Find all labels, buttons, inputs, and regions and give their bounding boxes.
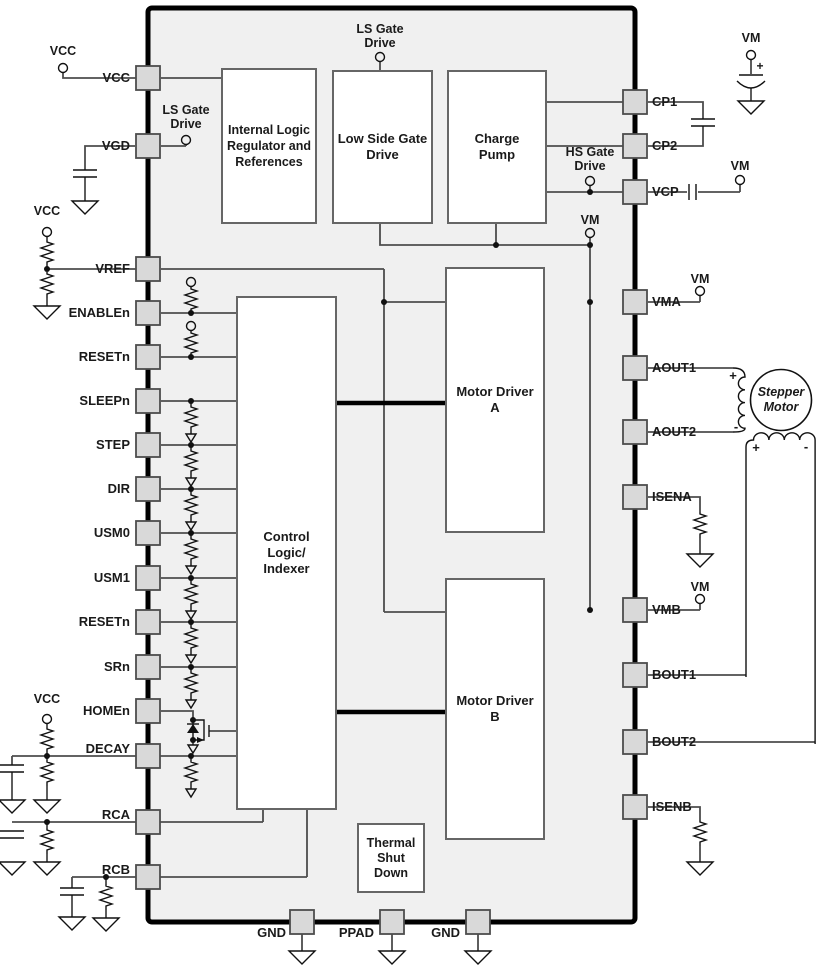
terminal-vm-vcp (736, 176, 745, 185)
pin-vgd (136, 134, 160, 158)
pin-label-vgd: VGD (0, 138, 130, 153)
block-internal-logic-regulator: Internal Logic Regulator and References (221, 68, 317, 224)
winding-b-icon (746, 433, 815, 744)
pin-homen (136, 699, 160, 723)
vm-label-vcp: VM (705, 159, 775, 173)
pin-enablen (136, 301, 160, 325)
stepper-motor-label: Stepper Motor (741, 385, 816, 415)
block-motor-driver-b: Motor Driver B (445, 578, 545, 840)
pin-vmb (623, 598, 647, 622)
capacitor-decay (0, 765, 24, 772)
pin-label-aout1: AOUT1 (652, 360, 736, 375)
pin-label-resetn-2: RESETn (0, 614, 130, 629)
pin-label-vcp: VCP (652, 184, 736, 199)
pin-decay (136, 744, 160, 768)
winding-b-plus: + (749, 440, 763, 455)
pin-step (136, 433, 160, 457)
block-control-logic-indexer: Control Logic/ Indexer (236, 296, 337, 810)
pin-label-gnd-2: GND (376, 925, 460, 940)
pin-label-aout2: AOUT2 (652, 424, 736, 439)
pin-label-rca: RCA (0, 807, 130, 822)
pin-usm1 (136, 566, 160, 590)
winding-b-minus: - (799, 439, 813, 454)
ground-vm-bulk (738, 101, 764, 114)
hs-gate-drive-label: HS Gate Drive (555, 145, 625, 173)
resistor-isena (694, 512, 706, 538)
pin-label-usm1: USM1 (0, 570, 130, 585)
pin-vref (136, 257, 160, 281)
pin-cp1 (623, 90, 647, 114)
terminal-vcc-vref (43, 228, 52, 237)
vm-label-vmb: VM (665, 580, 735, 594)
pin-vcp (623, 180, 647, 204)
pin-label-resetn-1: RESETn (0, 349, 130, 364)
pin-label-bout1: BOUT1 (652, 667, 736, 682)
ground-rcb-cap (59, 917, 85, 930)
ls-gate-drive-label-vgd: LS Gate Drive (151, 103, 221, 131)
ground-rcb-res (93, 918, 119, 931)
pin-aout2 (623, 420, 647, 444)
ls-gate-drive-label-top: LS Gate Drive (345, 22, 415, 50)
pin-dir (136, 477, 160, 501)
pin-label-srn: SRn (0, 659, 130, 674)
pin-rcb (136, 865, 160, 889)
pin-label-vcc: VCC (0, 70, 130, 85)
ground-gnd1 (289, 951, 315, 964)
ground-gnd2 (465, 951, 491, 964)
vcc-label-top: VCC (28, 44, 98, 58)
capacitor-rcb (60, 888, 84, 895)
resistor-isenb (694, 820, 706, 846)
capacitor-rca (0, 831, 24, 838)
pin-srn (136, 655, 160, 679)
pin-label-gnd-1: GND (204, 925, 286, 940)
pin-gnd-2 (466, 910, 490, 934)
block-diagram: Internal Logic Regulator and References … (0, 0, 816, 969)
vm-label-bulk: VM (716, 31, 786, 45)
pin-resetn-1 (136, 345, 160, 369)
resistor-rca (41, 828, 53, 854)
pin-label-ppad: PPAD (286, 925, 374, 940)
resistor-rcb (100, 884, 112, 910)
pin-cp2 (623, 134, 647, 158)
pin-label-vref: VREF (0, 261, 130, 276)
pin-sleepn (136, 389, 160, 413)
block-motor-driver-a: Motor Driver A (445, 267, 545, 533)
pin-bout2 (623, 730, 647, 754)
pin-label-bout2: BOUT2 (652, 734, 736, 749)
ground-isena (687, 554, 713, 567)
pin-label-rcb: RCB (0, 862, 130, 877)
ground-isenb (687, 862, 713, 875)
pin-aout1 (623, 356, 647, 380)
pin-label-dir: DIR (0, 481, 130, 496)
pin-isenb (623, 795, 647, 819)
block-charge-pump: Charge Pump (447, 70, 547, 224)
pin-label-vmb: VMB (652, 602, 736, 617)
capacitor-vm-bulk-icon (737, 75, 765, 88)
vcc-label-vref: VCC (12, 204, 82, 218)
pin-vma (623, 290, 647, 314)
pin-vcc (136, 66, 160, 90)
ground-ppad (379, 951, 405, 964)
pin-label-vma: VMA (652, 294, 736, 309)
capacitor-cp (691, 119, 715, 126)
block-thermal-shutdown: Thermal Shut Down (357, 823, 425, 893)
pin-label-isena: ISENA (652, 489, 736, 504)
pin-label-usm0: USM0 (0, 525, 130, 540)
bulk-cap-plus: + (753, 59, 767, 73)
pin-label-enablen: ENABLEn (0, 305, 130, 320)
pin-label-cp2: CP2 (652, 138, 736, 153)
resistor-decay (41, 760, 53, 786)
pin-usm0 (136, 521, 160, 545)
capacitor-vgd (73, 170, 97, 177)
winding-a-minus: - (729, 419, 743, 434)
vm-label-internal: VM (555, 213, 625, 227)
winding-a-plus: + (726, 368, 740, 383)
block-low-side-gate-drive: Low Side Gate Drive (332, 70, 433, 224)
vcc-label-decay: VCC (12, 692, 82, 706)
pin-resetn-2 (136, 610, 160, 634)
pin-label-sleepn: SLEEPn (0, 393, 130, 408)
pin-label-decay: DECAY (0, 741, 130, 756)
pin-label-isenb: ISENB (652, 799, 736, 814)
vm-label-vma: VM (665, 272, 735, 286)
pin-isena (623, 485, 647, 509)
pin-rca (136, 810, 160, 834)
pin-label-step: STEP (0, 437, 130, 452)
pin-label-cp1: CP1 (652, 94, 736, 109)
pin-bout1 (623, 663, 647, 687)
